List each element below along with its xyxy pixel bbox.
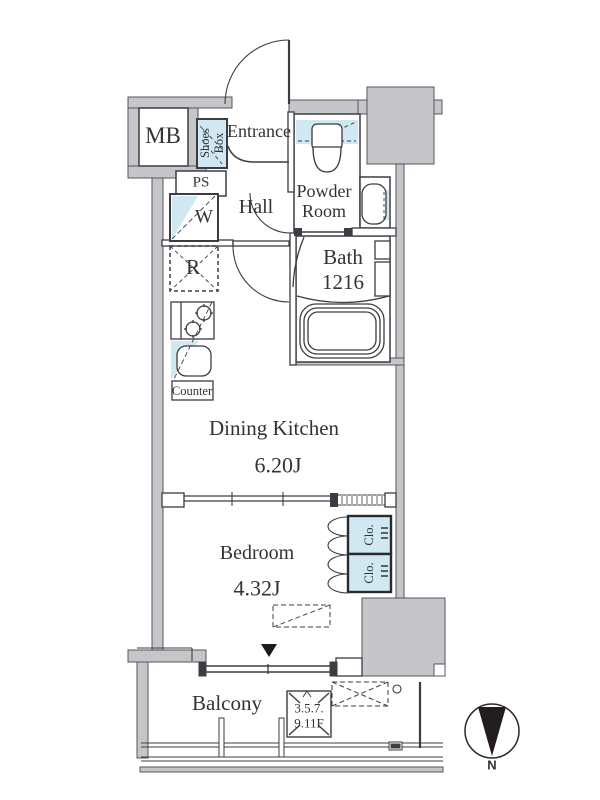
washer-label: W <box>195 206 213 227</box>
bedroom-marks <box>261 605 330 657</box>
closet-bifold-doors <box>328 517 348 593</box>
ac-unit-dashed-box <box>332 682 388 706</box>
railing-post <box>219 718 224 757</box>
floor-note-line2: 9.11F <box>294 716 324 731</box>
mb-label: MB <box>145 123 181 149</box>
powder-label-line2: Room <box>302 201 346 221</box>
entrance-door <box>225 40 289 162</box>
floor-plan: MB ShoesBox Entrance PS Hall PowderRoom … <box>0 0 600 800</box>
bedroom-label: Bedroom <box>220 542 294 564</box>
kitchen-stove <box>171 302 214 339</box>
bath-label-line1: Bath <box>323 245 363 269</box>
closets <box>328 516 391 593</box>
column-notch <box>434 664 445 676</box>
powder-label-line1: Powder <box>297 181 352 201</box>
hall-label: Hall <box>239 196 273 218</box>
powder-room-label: PowderRoom <box>297 181 352 221</box>
drain-icon <box>389 742 402 750</box>
closet-top-label: Clo. <box>362 524 376 545</box>
railing-post <box>279 718 284 757</box>
bath-label-line2: 1216 <box>322 270 364 294</box>
dining-kitchen-label: Dining Kitchen <box>209 417 339 441</box>
counter-label: Counter <box>172 384 212 398</box>
entrance-step-line <box>228 146 289 162</box>
compass-icon <box>465 704 519 758</box>
shoes-box-label: ShoesBox <box>198 128 226 158</box>
triangle-marker-icon <box>261 644 277 657</box>
compass-north-label: N <box>487 759 496 774</box>
dining-kitchen-size: 6.20J <box>254 454 301 479</box>
hose-bib-icon <box>393 685 401 693</box>
closet-bottom-label: Clo. <box>362 562 376 583</box>
refrigerator-label: R <box>186 256 200 280</box>
toilet-icon <box>312 124 342 172</box>
floor-note-label: 3.5.7.9.11F <box>294 701 324 732</box>
bath-label: Bath1216 <box>322 245 364 295</box>
vanity-sink-icon <box>362 184 389 224</box>
floor-plan-linework <box>0 0 600 800</box>
entrance-label: Entrance <box>227 121 291 141</box>
balcony-label: Balcony <box>192 692 262 716</box>
ps-label: PS <box>193 175 210 192</box>
burner-icon <box>186 322 200 336</box>
shoes-box-label-line2: Box <box>212 133 226 154</box>
bedroom-size: 4.32J <box>233 577 280 602</box>
dk-bedroom-partition <box>184 492 385 506</box>
floor-note-line1: 3.5.7. <box>294 701 323 716</box>
shoes-box-label-line1: Shoes <box>198 128 212 158</box>
balcony-linework <box>141 682 443 761</box>
